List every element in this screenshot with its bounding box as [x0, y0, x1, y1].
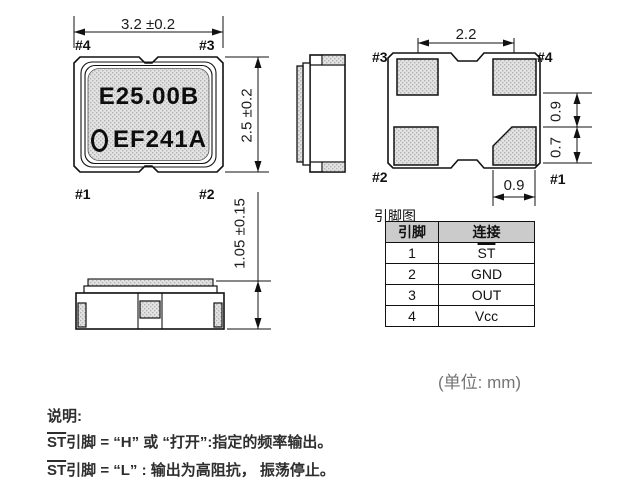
oscillator-datasheet-drawing: 3.2 ±0.2 #4 #3 #1 #2 2.5 ±0.2 E25.00B EF… — [0, 0, 642, 490]
package-marking-frequency: E25.00B — [92, 83, 206, 111]
note-line-2: ST引脚 = “L” : 输出为高阻抗， 振荡停止。 — [47, 459, 335, 480]
pin-table-header-pin: 引脚 — [386, 222, 439, 243]
top-view-height-dim: 2.5 ±0.2 — [239, 76, 256, 156]
bottom-view-pitch-dim: 2.2 — [450, 26, 482, 43]
manufacturer-logo-icon — [91, 129, 108, 152]
bottom-view-lower-pad-dim: 0.7 — [548, 134, 565, 162]
pin-number: 4 — [386, 306, 439, 327]
bottom-view-upper-pad-dim: 0.9 — [548, 98, 565, 126]
pin-connection: ST — [439, 243, 535, 264]
note-line-2-text: 引脚 = “L” : 输出为高阻抗， 振荡停止。 — [66, 462, 335, 479]
pin-table-header-row: 引脚 连接 — [386, 222, 535, 243]
pin-number: 1 — [386, 243, 439, 264]
bottom-view-pin1-label: #1 — [550, 171, 566, 187]
bottom-view-pin2-label: #2 — [372, 169, 388, 185]
pin-table: 引脚 连接 1 ST 2 GND 3 OUT 4 Vcc — [385, 221, 535, 327]
top-view-pin2-label: #2 — [199, 186, 215, 202]
unit-note: (单位: mm) — [438, 368, 521, 393]
pin-table-header-conn: 连接 — [439, 222, 535, 243]
top-view-pin1-label: #1 — [75, 186, 91, 202]
pin-connection: GND — [439, 264, 535, 285]
drawing-layer — [0, 0, 642, 490]
pin-connection: OUT — [439, 285, 535, 306]
pin-connection: Vcc — [439, 306, 535, 327]
note-line-1: ST引脚 = “H” 或 “打开”:指定的频率输出。 — [47, 431, 332, 452]
table-row: 3 OUT — [386, 285, 535, 306]
table-row: 2 GND — [386, 264, 535, 285]
bottom-view-pad-width-dim: 0.9 — [500, 177, 528, 194]
notes-heading: 说明: — [47, 405, 82, 426]
note-line-1-text: 引脚 = “H” 或 “打开”:指定的频率输出。 — [66, 434, 332, 451]
front-view-height-dim: 1.05 ±0.15 — [232, 189, 249, 279]
bottom-view-pin4-label: #4 — [537, 49, 553, 65]
st-pin-symbol: ST — [47, 434, 66, 451]
table-row: 1 ST — [386, 243, 535, 264]
st-pin-symbol: ST — [47, 462, 66, 479]
pin-number: 3 — [386, 285, 439, 306]
package-marking-row: EF241A — [90, 126, 208, 154]
pin-number: 2 — [386, 264, 439, 285]
top-view-pin3-label: #3 — [199, 37, 215, 53]
package-marking-code: EF241A — [113, 126, 207, 154]
bottom-view-pin3-label: #3 — [372, 49, 388, 65]
top-view-pin4-label: #4 — [75, 37, 91, 53]
side-view-drawing — [297, 55, 345, 172]
table-row: 4 Vcc — [386, 306, 535, 327]
top-view-width-dim: 3.2 ±0.2 — [100, 16, 196, 33]
